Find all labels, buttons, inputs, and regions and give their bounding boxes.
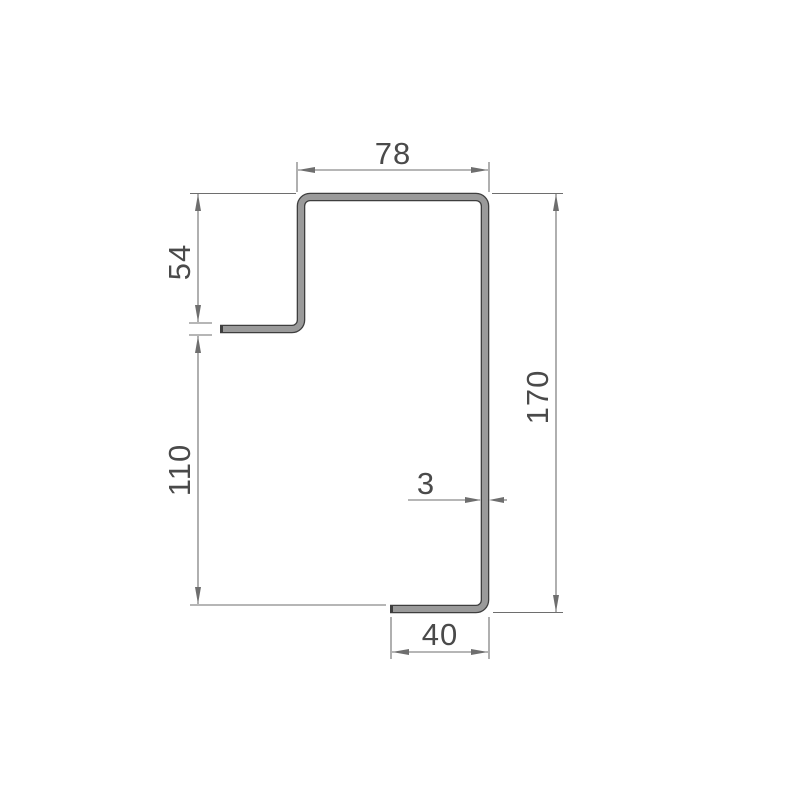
arrowhead-right: [465, 497, 481, 503]
arrowhead-left: [298, 167, 315, 173]
arrowhead-down: [195, 587, 201, 604]
dim-upper-left-height: [189, 194, 296, 324]
label-bottom-width: 40: [422, 617, 458, 652]
dim-lower-left-height: [189, 335, 386, 605]
profile-outline: [220, 197, 485, 609]
label-right-height: 170: [520, 370, 555, 425]
arrowhead-left: [392, 649, 409, 655]
arrowhead-up: [195, 194, 201, 211]
profile-shape: [220, 197, 485, 609]
label-lower-left-height: 110: [162, 444, 197, 496]
label-thickness: 3: [417, 466, 435, 501]
arrowhead-right: [471, 649, 488, 655]
drawing-page: 78 54 110 170 3 40: [0, 0, 800, 800]
arrowhead-right: [471, 167, 488, 173]
label-top-width: 78: [375, 136, 411, 171]
arrowhead-left: [489, 497, 504, 503]
dimension-graphics: [189, 162, 563, 659]
technical-drawing: 78 54 110 170 3 40: [0, 0, 800, 800]
label-upper-left-height: 54: [162, 244, 197, 280]
arrowhead-up: [553, 194, 559, 211]
dimension-labels: 78 54 110 170 3 40: [162, 136, 555, 652]
profile-fill: [223, 197, 485, 609]
arrowhead-down: [553, 595, 559, 612]
arrowhead-up: [195, 336, 201, 353]
arrowhead-down: [195, 305, 201, 322]
